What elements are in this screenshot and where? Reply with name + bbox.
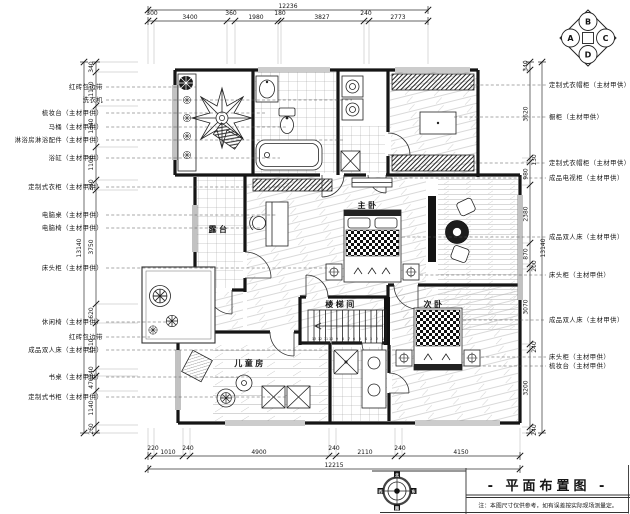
dim: 3400 <box>182 14 197 21</box>
master-bed <box>344 210 401 282</box>
planter-pot-plant <box>179 76 193 90</box>
elevation-letter-c: C <box>603 34 609 43</box>
dim-bottom-total: 12215 <box>324 462 343 469</box>
annotation-label: 定制式衣柜（主材甲供） <box>28 182 103 191</box>
dim: 620 <box>88 307 95 319</box>
pillow <box>375 218 397 228</box>
faucet-dot <box>266 81 268 83</box>
dim: 240 <box>328 445 340 452</box>
dim: 200 <box>531 260 538 272</box>
annotation-label: 电脑椅（主材甲供） <box>42 223 103 232</box>
dim: 3827 <box>314 14 329 21</box>
dryer-machine <box>342 99 363 120</box>
umbrella-pole <box>216 112 228 124</box>
stair-step-number: 8 <box>342 337 344 341</box>
annotation-label: 电脑桌（主材甲供） <box>42 210 103 219</box>
window-corridor-left <box>193 205 198 252</box>
plant-icon <box>166 315 177 326</box>
room-label-kids-room: 儿童房 <box>233 358 266 368</box>
dim: 220 <box>147 445 159 452</box>
dimension-chain-right: 340 3620 130 980 2380 870 200 3070 240 3… <box>522 59 547 436</box>
stair-step-number: 9 <box>336 337 338 341</box>
custom-wardrobe <box>253 179 332 191</box>
dim-top-total: 12236 <box>278 3 297 10</box>
annotation-label: 定制式书柜（主材甲供） <box>28 392 103 401</box>
bed-blanket <box>416 310 460 346</box>
dim: 240 <box>360 10 372 17</box>
plant-icon <box>183 114 190 121</box>
wardrobe-top <box>392 74 474 90</box>
annotation-label: 马桶（主材甲供） <box>49 122 103 131</box>
dim-left-total: 13140 <box>76 238 83 257</box>
annotation-label: 梳妆台（主材甲供） <box>549 361 610 370</box>
dim: 300 <box>146 10 158 17</box>
bathtub <box>256 140 322 170</box>
dim: 870 <box>523 248 530 260</box>
stair-step-number: 2 <box>376 337 378 341</box>
dim: 3750 <box>88 239 95 254</box>
room-label-stair-hall: 楼梯间 <box>325 299 357 309</box>
dim: 240 <box>531 341 538 353</box>
vanity-counter-2 <box>362 350 386 408</box>
elevation-index-symbol: B A C D <box>560 10 616 66</box>
window-kids-left <box>176 350 181 410</box>
stair-step-number: 6 <box>353 337 355 341</box>
annotation-label: 定制式衣帽柜（主材甲供） <box>549 158 630 167</box>
dimension-chain-bottom: 220 1010 240 4900 240 2110 240 4150 1221… <box>145 428 523 473</box>
dim: 240 <box>182 445 194 452</box>
annotation-label: 红砖包边带 <box>69 332 103 341</box>
dim: 4150 <box>453 449 468 456</box>
dim: 2380 <box>523 206 530 221</box>
annotation-label: 红砖包边带 <box>69 82 103 91</box>
window-cloakroom-top <box>395 68 470 73</box>
annotation-label: 成品电视柜（主材甲供） <box>549 173 624 182</box>
dim: 340 <box>523 60 530 72</box>
annotation-label: 成品双人床（主材甲供） <box>549 315 624 324</box>
floor-plan-drawing: 主卧 露台 13 12 11 10 9 8 7 6 5 4 3 2 1 楼梯间 <box>0 0 630 514</box>
annotation-label: 洗衣机 <box>83 95 104 104</box>
room-label-second-bedroom: 次卧 <box>424 299 445 309</box>
drawing-note: 注：本图尺寸仅供参考，如有误差按实际现场测量定。 <box>478 502 617 510</box>
dim: 130 <box>531 154 538 166</box>
cloakroom-door-gap <box>385 132 391 156</box>
annotation-label: 床头柜（主材甲供） <box>549 352 610 361</box>
stair-step-number: 10 <box>329 337 333 341</box>
kids-room-wood-floor <box>213 345 328 421</box>
plant-icon <box>221 393 232 404</box>
dim: 3200 <box>523 380 530 395</box>
stair-step-number: 1 <box>382 337 384 341</box>
washing-machine <box>342 76 363 97</box>
room-label-terrace: 露台 <box>209 224 230 234</box>
window-terrace-left <box>173 85 178 160</box>
dim: 180 <box>274 10 286 17</box>
elevation-letter-a: A <box>567 34 574 43</box>
stair-step-number: 5 <box>359 337 361 341</box>
toilet-tank <box>279 108 295 116</box>
window-bedroom2-bottom <box>415 421 500 426</box>
annotation-label: 梳妆台（主材甲供） <box>42 108 103 117</box>
plant-icon <box>183 132 190 139</box>
annotation-label: 床头柜（主材甲供） <box>549 270 610 279</box>
drawing-title: - 平面布置图 - <box>488 478 609 494</box>
laundry-room <box>341 76 363 171</box>
annotation-label: 成品双人床（主材甲供） <box>549 232 624 241</box>
annotation-label: 橱柜（主材甲供） <box>549 112 603 121</box>
north-compass: 北 东 南 西 <box>378 471 417 511</box>
desk-chair <box>253 217 266 230</box>
annotation-label: 书桌（主材甲供） <box>49 372 103 381</box>
stair-step-number: 4 <box>365 337 367 341</box>
dim: 1980 <box>248 14 263 21</box>
dim: 2773 <box>390 14 405 21</box>
dim: 360 <box>225 10 237 17</box>
annotation-label: 定制式衣帽柜（主材甲供） <box>549 80 630 89</box>
bed-blanket <box>346 230 399 256</box>
plant-icon <box>149 326 157 334</box>
plant-icon <box>183 151 190 158</box>
annotation-label: 成品双人床（主材甲供） <box>28 345 103 354</box>
stair-step-number: 7 <box>348 337 350 341</box>
window-kids-bottom <box>225 421 305 426</box>
computer-desk <box>266 202 288 246</box>
stair-step-number: 13 <box>312 337 316 341</box>
dim: 240 <box>394 445 406 452</box>
dim: 4900 <box>251 449 266 456</box>
roof-terrace <box>178 74 252 171</box>
dim: 1140 <box>88 400 95 415</box>
kids-table <box>236 375 252 391</box>
annotation-label: 休闲椅（主材甲供） <box>42 317 103 326</box>
dim: 240 <box>531 424 538 436</box>
second-bed <box>414 308 462 370</box>
dim: 1010 <box>160 449 175 456</box>
room-label-master-bedroom: 主卧 <box>358 200 379 210</box>
tv-cabinet-wall <box>428 196 436 262</box>
window-bathroom-top <box>258 68 330 73</box>
plant-icon <box>153 289 167 303</box>
elevation-letter-b: B <box>585 18 591 27</box>
dim: 260 <box>88 423 95 435</box>
dim: 2110 <box>357 449 372 456</box>
stair-step-number: 11 <box>324 337 328 341</box>
floor-plan-sheet: 主卧 露台 13 12 11 10 9 8 7 6 5 4 3 2 1 楼梯间 <box>0 0 630 514</box>
elevation-letter-d: D <box>585 51 592 60</box>
annotation-label: 淋浴房淋浴配件（主材甲供） <box>15 135 103 144</box>
garden-terrace <box>142 267 215 343</box>
annotation-label: 床头柜（主材甲供） <box>42 263 103 272</box>
dimension-chain-top: 12236 300 3400 360 1980 180 3827 240 277… <box>145 3 431 64</box>
stair-step-number: 3 <box>370 337 372 341</box>
wardrobe-bottom <box>392 155 474 171</box>
dim-right-total: 13140 <box>540 238 547 257</box>
annotation-label: 浴缸（主材甲供） <box>49 153 103 162</box>
stair-side-wall <box>384 297 390 345</box>
stair-step-number: 12 <box>318 337 322 341</box>
dim: 340 <box>88 61 95 73</box>
dim: 3070 <box>523 299 530 314</box>
dim: 3620 <box>523 106 530 121</box>
pillow <box>348 218 370 228</box>
